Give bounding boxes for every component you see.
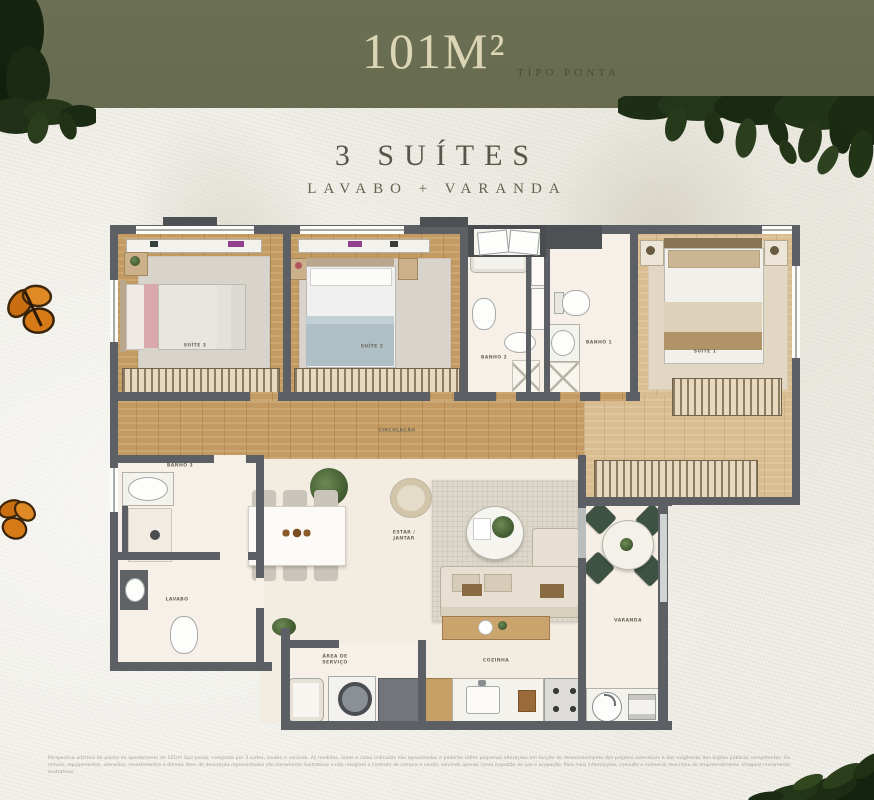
plant-icon — [130, 256, 140, 266]
suite1-pillows — [668, 250, 760, 268]
suite3-bed — [158, 284, 246, 350]
door-opening — [560, 392, 580, 401]
room-label-area-servico: ÁREA DE SERVIÇO — [318, 654, 352, 665]
suite1-blanket — [664, 302, 762, 332]
lamp-icon — [646, 246, 655, 255]
laundry-tub — [288, 678, 324, 722]
wall — [664, 497, 800, 505]
room-label-suite2: SUÍTE 2 — [361, 345, 384, 350]
window — [792, 266, 800, 358]
foliage-top-left-icon — [0, 0, 96, 152]
plan-subtitle: LAVABO + VARANDA — [0, 181, 874, 198]
door-opening — [430, 392, 454, 401]
lavabo-sink — [125, 578, 145, 602]
varanda-railing-glass — [660, 514, 667, 602]
wall — [460, 233, 468, 393]
entry-door — [508, 229, 540, 255]
sofa-cushion — [484, 574, 512, 592]
laundry-cabinet — [378, 678, 420, 722]
room-label-banho3: BANHO 3 — [167, 464, 193, 469]
window — [136, 226, 254, 234]
plant-icon — [498, 621, 507, 630]
legal-disclaimer: Perspectiva artística da planta do apart… — [48, 755, 790, 777]
door-opening — [220, 552, 248, 560]
window — [300, 226, 404, 234]
room-label-banho2: BANHO 2 — [481, 356, 507, 361]
room-label-banho1: BANHO 1 — [586, 341, 612, 346]
unit-type-label: TIPO PONTA — [517, 68, 620, 79]
plant-icon — [620, 538, 633, 551]
wall — [418, 640, 426, 730]
suite1-wardrobe — [672, 378, 782, 416]
coffee-table-book — [473, 518, 491, 540]
room-label-suite3: SUÍTE 3 — [184, 344, 207, 349]
suite1-blanket-fold — [664, 332, 762, 350]
glass-door — [578, 508, 586, 558]
wall — [526, 233, 531, 393]
wall — [544, 233, 550, 393]
room-label-estar-jantar: ESTAR / JANTAR — [387, 530, 421, 541]
door-opening — [496, 392, 516, 401]
room-label-circulacao: CIRCULAÇÃO — [378, 429, 415, 434]
credenza — [442, 616, 550, 640]
area-title: 101M² — [362, 26, 506, 76]
banho2-sink — [504, 332, 536, 353]
lavabo-toilet — [170, 616, 198, 654]
suite1-headboard — [664, 238, 762, 248]
lamp-icon — [770, 246, 779, 255]
door-opening — [250, 392, 278, 401]
suite2-decor — [348, 241, 362, 247]
varanda-grill — [628, 694, 656, 720]
table-centerpiece — [278, 524, 314, 542]
suite2-decor-flowers — [295, 262, 302, 269]
wall-stub — [420, 217, 468, 227]
suite3-decor — [228, 241, 244, 247]
foliage-top-right-icon — [618, 96, 874, 182]
sofa-throw — [462, 584, 482, 596]
suite3-pillows — [126, 284, 146, 350]
room-label-suite1: SUÍTE 1 — [694, 350, 717, 355]
page: 101M² TIPO PONTA 3 SUÍTES LAVABO + VARAN… — [0, 0, 874, 800]
wall — [281, 721, 672, 730]
kitchen-sink — [466, 686, 500, 714]
door-opening — [214, 455, 246, 463]
suite2-headboard — [306, 258, 394, 266]
suite2-blanket-teal — [306, 316, 394, 366]
armchair — [390, 478, 432, 518]
suite1-wardrobe-2 — [594, 460, 758, 498]
banho1-sink — [551, 330, 575, 356]
banho1-shower — [546, 362, 580, 394]
cutting-board — [518, 690, 536, 712]
kitchen-cabinet — [424, 678, 454, 722]
suite2-nightstand — [398, 258, 418, 280]
suite2-pillows — [310, 268, 392, 286]
wall — [630, 225, 638, 393]
wall — [256, 455, 264, 670]
credenza-decor — [478, 620, 493, 635]
suite2-sill-shelf — [298, 239, 430, 253]
wall — [578, 455, 586, 730]
window — [762, 226, 792, 234]
wall — [110, 662, 272, 671]
wall — [283, 233, 291, 393]
suite3-blanket-pink — [144, 284, 158, 348]
washer-door-icon — [338, 682, 372, 716]
banho2-toilet — [472, 298, 496, 330]
floor-hallway — [114, 395, 640, 459]
butterfly-icon — [0, 490, 36, 554]
faucet-icon — [478, 680, 486, 686]
plant-icon — [492, 516, 514, 538]
room-label-varanda: VARANDA — [614, 619, 642, 624]
entry-door — [477, 229, 509, 255]
banho1-toilet — [562, 290, 590, 316]
door-opening — [600, 392, 626, 401]
window — [110, 468, 118, 512]
suite3-decor — [150, 241, 158, 247]
banho3-sink — [128, 477, 168, 501]
wall — [281, 640, 339, 648]
wall — [122, 506, 128, 556]
duct-block — [544, 225, 602, 249]
room-label-cozinha: COZINHA — [483, 659, 509, 664]
suite2-decor — [390, 241, 398, 247]
door-opening — [256, 578, 264, 608]
butterfly-icon — [6, 274, 60, 352]
shaft-door — [531, 288, 545, 330]
wall — [578, 497, 672, 506]
sofa-throw — [540, 584, 564, 598]
shower-drain-icon — [150, 530, 160, 540]
room-label-lavabo: LAVABO — [166, 598, 189, 603]
window — [110, 280, 118, 342]
